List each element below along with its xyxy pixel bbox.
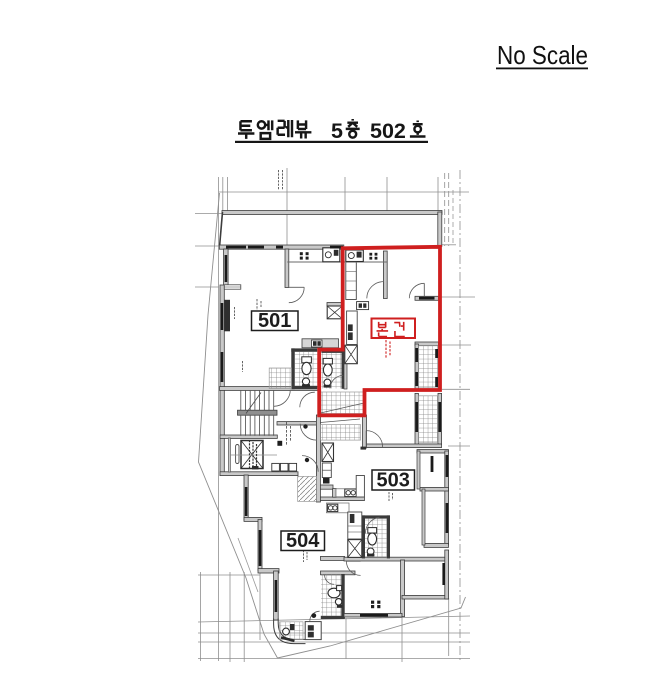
svg-text:504: 504 [286, 530, 320, 552]
svg-text:No Scale: No Scale [497, 40, 588, 70]
svg-text:503: 503 [377, 470, 410, 492]
svg-text:502: 502 [370, 119, 406, 143]
svg-text:5: 5 [331, 119, 343, 143]
svg-text:501: 501 [258, 310, 291, 332]
